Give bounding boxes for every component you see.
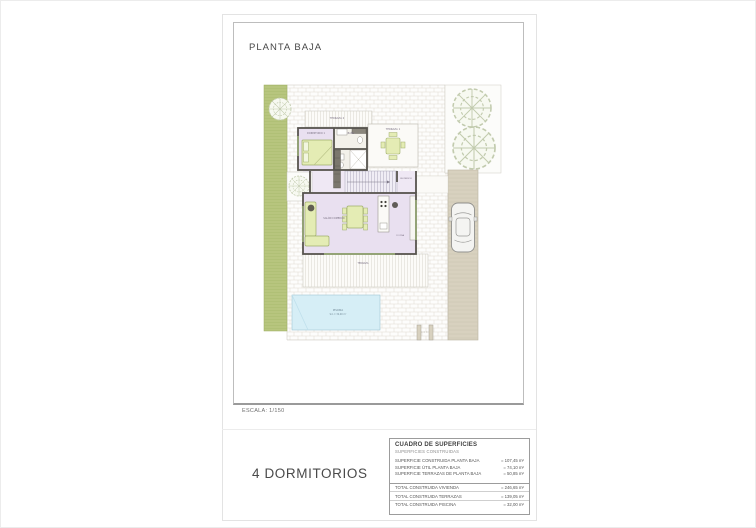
dining-table-icon: [343, 206, 368, 230]
surfaces-rows: SUPERFICIE CONSTRUIDA PLANTA BAJA = 107,…: [395, 458, 524, 478]
terraza-trasera-floor: [303, 254, 428, 287]
row-label: SUPERFICIE CONSTRUIDA PLANTA BAJA: [395, 458, 479, 465]
table-row: TOTAL CONSTRUIDA TERRAZAS = 139,05 m²: [390, 492, 529, 500]
surfaces-table-title: CUADRO DE SUPERFICIES: [395, 442, 524, 448]
table-row: SUPERFICIE CONSTRUIDA PLANTA BAJA = 107,…: [395, 458, 524, 465]
label-piscina-area: S.C.= 32,00 m²: [330, 313, 347, 316]
site-plan: TERRAZA 2 DORMITORIO 1 BAÑO TERRAZA 1 RE…: [262, 84, 502, 342]
surfaces-table-subtitle: SUPERFICIES CONSTRUIDAS: [395, 449, 524, 454]
bed-icon: [302, 140, 332, 165]
plant-icon: [392, 202, 398, 208]
row-label: SUPERFICIE ÚTIL PLANTA BAJA: [395, 465, 460, 472]
row-label: SUPERFICIE TERRAZAS DE PLANTA BAJA: [395, 471, 481, 478]
tree-icon: [453, 89, 491, 127]
row-value: = 50,85 m²: [503, 471, 524, 478]
table-row: SUPERFICIE ÚTIL PLANTA BAJA = 74,10 m²: [395, 465, 524, 472]
driveway: [448, 170, 478, 340]
titleblock-divider: [222, 429, 536, 430]
scale-label: ESCALA: 1/150: [242, 408, 284, 414]
table-row: TOTAL CONSTRUIDA PISCINA = 32,00 m²: [390, 501, 529, 508]
label-salon: SALÓN COMEDOR: [323, 217, 345, 220]
stairs: [345, 171, 397, 193]
label-terraza2: TERRAZA 2: [330, 116, 345, 120]
surfaces-totals: TOTAL CONSTRUIDA VIVIENDA = 246,65 m² TO…: [390, 483, 529, 508]
label-recibidor: RECIBIDOR: [400, 178, 412, 180]
page: PLANTA BAJA: [0, 0, 756, 528]
row-label: TOTAL CONSTRUIDA VIVIENDA: [395, 485, 459, 490]
site-plan-svg: TERRAZA 2 DORMITORIO 1 BAÑO TERRAZA 1 RE…: [262, 84, 502, 342]
label-dormitorio1: DORMITORIO 1: [307, 132, 326, 135]
label-cocina: COCINA: [396, 234, 405, 237]
tree-icon: [453, 127, 495, 169]
bedrooms-caption: 4 DORMITORIOS: [252, 466, 368, 481]
row-value: = 32,00 m²: [503, 502, 524, 507]
surfaces-table: CUADRO DE SUPERFICIES SUPERFICIES CONSTR…: [389, 438, 530, 515]
tree-icon: [269, 98, 291, 120]
row-label: TOTAL CONSTRUIDA TERRAZAS: [395, 494, 462, 499]
label-terraza-trasera: TERRAZA: [357, 262, 368, 265]
plant-icon: [308, 205, 315, 212]
entry-walkway: [416, 176, 448, 193]
row-value: = 107,45 m²: [501, 458, 524, 465]
label-terraza1: TERRAZA 1: [386, 127, 401, 131]
row-label: TOTAL CONSTRUIDA PISCINA: [395, 502, 456, 507]
row-value: = 139,05 m²: [501, 494, 524, 499]
row-value: = 246,65 m²: [501, 485, 524, 490]
kitchen-island-icon: [378, 196, 389, 232]
car-icon: [449, 203, 477, 252]
grass-strip: [264, 85, 287, 331]
table-row: TOTAL CONSTRUIDA VIVIENDA = 246,65 m²: [390, 484, 529, 492]
label-bano: BAÑO: [348, 132, 355, 135]
label-piscina: PISCINA: [333, 308, 343, 312]
row-value: = 74,10 m²: [503, 465, 524, 472]
table-row: SUPERFICIE TERRAZAS DE PLANTA BAJA = 50,…: [395, 471, 524, 478]
plan-title: PLANTA BAJA: [249, 42, 322, 53]
